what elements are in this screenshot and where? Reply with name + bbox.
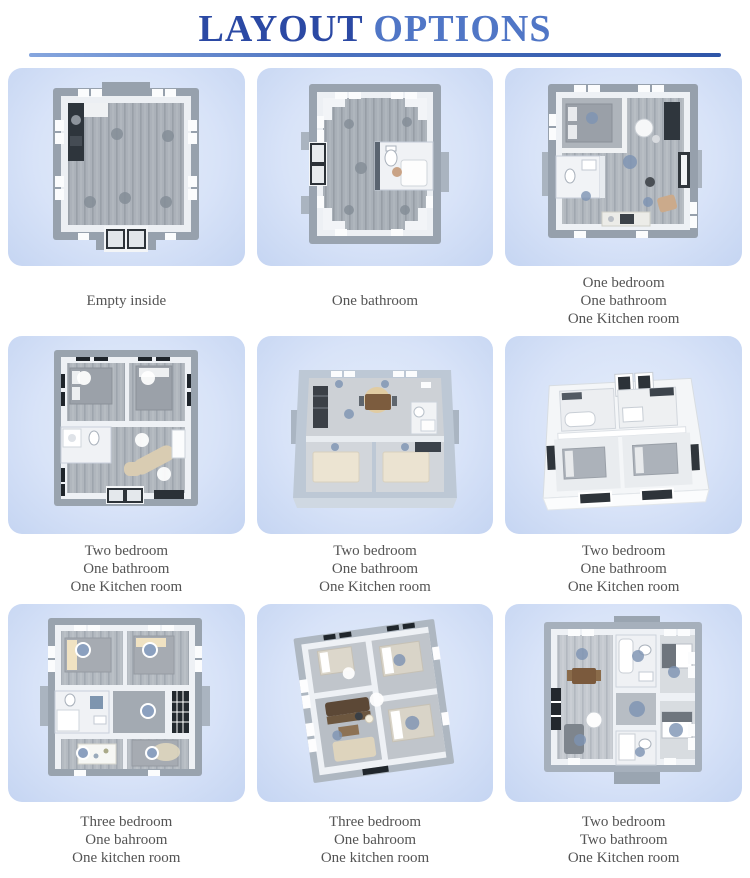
- title-underline: [29, 53, 721, 57]
- caption: Two bedroom One bathroom One Kitchen roo…: [505, 534, 742, 604]
- caption-line: One Kitchen room: [568, 849, 680, 867]
- caption: Two bedroom One bathroom One Kitchen roo…: [8, 534, 245, 604]
- floorplan-card: [505, 68, 742, 266]
- layout-options-page: LAYOUT OPTIONS: [0, 0, 750, 873]
- layout-option-cell-two-bed-two-bath: Two bedroom Two bathroom One Kitchen roo…: [505, 604, 742, 878]
- floorplan-card: [505, 604, 742, 802]
- floorplan-card: [257, 336, 494, 534]
- layout-option-cell-empty-inside: Empty inside: [8, 68, 245, 336]
- caption-line: One Kitchen room: [568, 310, 680, 328]
- caption-line: One Kitchen room: [319, 578, 431, 596]
- two-bedroom-floorplan-c-image: [518, 344, 730, 526]
- layout-option-cell-two-bedroom-b: Two bedroom One bathroom One Kitchen roo…: [257, 336, 494, 604]
- page-title-part2: OPTIONS: [363, 8, 552, 50]
- caption-line: Empty inside: [87, 292, 167, 310]
- floorplan-card: [8, 68, 245, 266]
- caption-line: One kitchen room: [72, 849, 180, 867]
- one-bedroom-floorplan-image: [518, 76, 730, 258]
- caption-line: One bathroom: [332, 292, 418, 310]
- page-title-part1: LAYOUT: [199, 8, 363, 50]
- floorplan-card: [257, 68, 494, 266]
- three-bedroom-floorplan-a-image: [20, 612, 232, 794]
- caption: One bedroom One bathroom One Kitchen roo…: [505, 266, 742, 336]
- caption-line: Three bedroom: [329, 813, 421, 831]
- caption-line: One bathroom: [581, 292, 667, 310]
- caption-line: One bedroom: [583, 274, 665, 292]
- caption: Two bedroom Two bathroom One Kitchen roo…: [505, 802, 742, 878]
- layout-options-grid: Empty inside: [8, 68, 742, 878]
- two-bedroom-floorplan-a-image: [20, 344, 232, 526]
- caption-line: Two bedroom: [582, 813, 666, 831]
- two-bed-two-bath-floorplan-image: [518, 612, 730, 794]
- three-bedroom-floorplan-b-image: [269, 612, 481, 794]
- layout-option-cell-one-bedroom: One bedroom One bathroom One Kitchen roo…: [505, 68, 742, 336]
- caption: Empty inside: [8, 266, 245, 336]
- layout-option-cell-three-bedroom-a: Three bedroom One bahroom One kitchen ro…: [8, 604, 245, 878]
- page-header: LAYOUT OPTIONS: [0, 0, 750, 57]
- layout-option-cell-two-bedroom-c: Two bedroom One bathroom One Kitchen roo…: [505, 336, 742, 604]
- caption-line: Two bedroom: [333, 542, 417, 560]
- caption-line: One Kitchen room: [568, 578, 680, 596]
- floorplan-card: [257, 604, 494, 802]
- two-bedroom-floorplan-b-image: [269, 344, 481, 526]
- caption-line: Two bedroom: [85, 542, 169, 560]
- caption-line: One bathroom: [581, 560, 667, 578]
- empty-room-floorplan-image: [20, 76, 232, 258]
- caption-line: One kitchen room: [321, 849, 429, 867]
- caption-line: One bathroom: [83, 560, 169, 578]
- caption: One bathroom: [257, 266, 494, 336]
- caption-line: One bathroom: [332, 560, 418, 578]
- caption: Three bedroom One bahroom One kitchen ro…: [8, 802, 245, 878]
- caption-line: Three bedroom: [80, 813, 172, 831]
- layout-option-cell-one-bathroom: One bathroom: [257, 68, 494, 336]
- floorplan-card: [8, 336, 245, 534]
- one-bathroom-floorplan-image: [269, 76, 481, 258]
- floorplan-card: [8, 604, 245, 802]
- caption-line: Two bedroom: [582, 542, 666, 560]
- layout-option-cell-three-bedroom-b: Three bedroom One bahroom One kitchen ro…: [257, 604, 494, 878]
- layout-option-cell-two-bedroom-a: Two bedroom One bathroom One Kitchen roo…: [8, 336, 245, 604]
- caption: Two bedroom One bathroom One Kitchen roo…: [257, 534, 494, 604]
- floorplan-card: [505, 336, 742, 534]
- page-title: LAYOUT OPTIONS: [0, 8, 750, 50]
- caption-line: One bahroom: [85, 831, 167, 849]
- caption-line: One bahroom: [334, 831, 416, 849]
- caption-line: One Kitchen room: [71, 578, 183, 596]
- caption-line: Two bathroom: [580, 831, 668, 849]
- caption: Three bedroom One bahroom One kitchen ro…: [257, 802, 494, 878]
